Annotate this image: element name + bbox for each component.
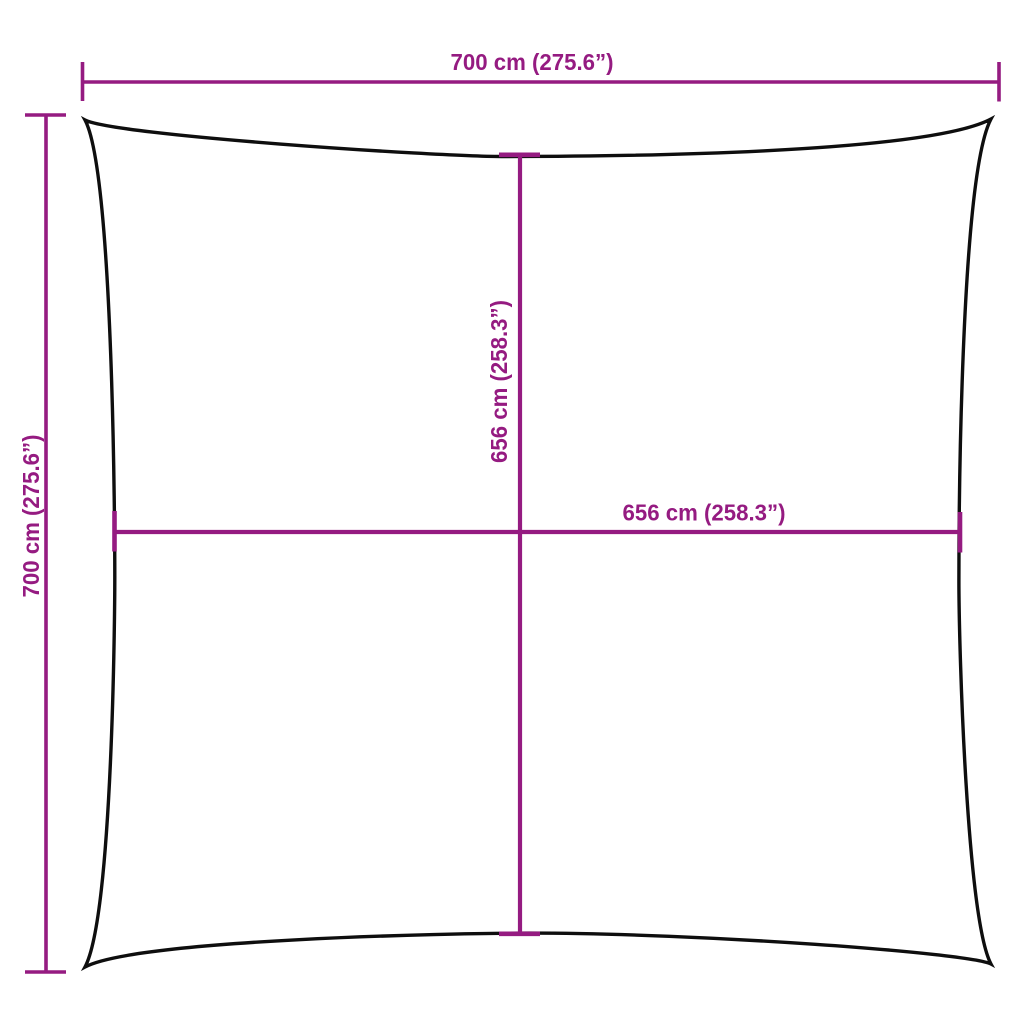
svg-text:700 cm (275.6”): 700 cm (275.6”) [18,435,44,598]
svg-text:700 cm (275.6”): 700 cm (275.6”) [451,49,614,75]
svg-text:656 cm (258.3”): 656 cm (258.3”) [623,500,786,526]
svg-text:656 cm (258.3”): 656 cm (258.3”) [486,300,512,463]
